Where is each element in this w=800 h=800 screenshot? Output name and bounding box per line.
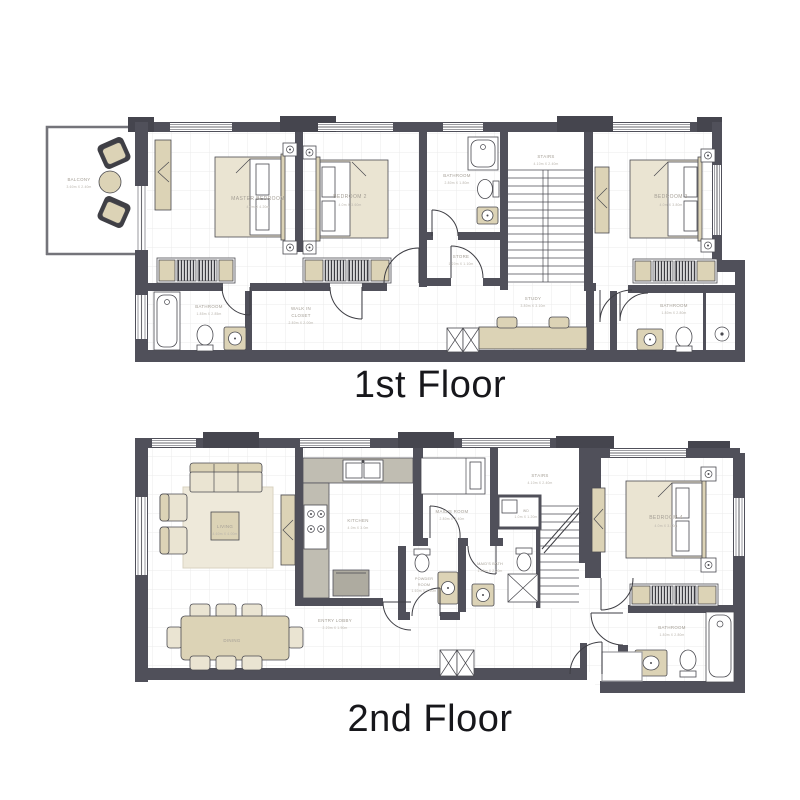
shaft (463, 328, 479, 352)
nightstand (701, 149, 715, 162)
svg-text:4.0m X 4.20m: 4.0m X 4.20m (247, 205, 270, 209)
window (713, 165, 721, 235)
svg-text:4.0m X 3.0m: 4.0m X 3.0m (348, 526, 369, 530)
svg-text:BATHROOM: BATHROOM (443, 173, 470, 178)
svg-text:1.80m X 2.20m: 1.80m X 2.20m (478, 569, 503, 573)
window (152, 439, 196, 447)
svg-text:BEDROOM 3: BEDROOM 3 (654, 194, 688, 200)
svg-text:1.80m X 2.80m: 1.80m X 2.80m (662, 311, 687, 315)
svg-text:4.0m X 3.80m: 4.0m X 3.80m (655, 524, 678, 528)
svg-text:CLOSET: CLOSET (291, 313, 310, 318)
sofa (190, 463, 262, 492)
toilet (676, 327, 692, 352)
svg-text:1.80m X 2.80m: 1.80m X 2.80m (660, 633, 685, 637)
svg-text:MASTER BEDROOM: MASTER BEDROOM (231, 196, 285, 202)
svg-text:ENTRY LOBBY: ENTRY LOBBY (318, 618, 352, 623)
svg-text:BATHROOM: BATHROOM (660, 303, 687, 308)
armchair (160, 494, 187, 521)
nightstand (701, 239, 715, 252)
svg-text:4.0m X 3.60m: 4.0m X 3.60m (339, 203, 362, 207)
wardrobe-cabinet (592, 488, 605, 552)
svg-text:POWDER: POWDER (415, 577, 433, 581)
room-label-dining: DINING (223, 638, 240, 643)
svg-text:BEDROOM 2: BEDROOM 2 (333, 194, 367, 200)
stove (304, 505, 327, 549)
bathtub (706, 612, 734, 682)
stool (549, 317, 569, 328)
wardrobe-row (303, 258, 391, 283)
nightstand (283, 143, 297, 156)
toilet (516, 548, 532, 571)
bathtub (154, 292, 180, 350)
toilet (478, 180, 500, 199)
nightstand (701, 558, 716, 572)
svg-text:2.20m X 1.90m: 2.20m X 1.90m (323, 626, 348, 630)
window (300, 439, 370, 447)
bathtub (468, 137, 498, 170)
svg-text:KITCHEN: KITCHEN (347, 518, 368, 523)
window (610, 449, 686, 457)
window (734, 498, 744, 556)
svg-text:BATHROOM: BATHROOM (195, 304, 222, 309)
wd-closet (498, 496, 540, 528)
sink (637, 329, 663, 350)
svg-text:BALCONY: BALCONY (67, 177, 90, 182)
svg-text:3.60m X 2.40m: 3.60m X 2.40m (67, 185, 92, 189)
svg-text:2.80m X 2.00m: 2.80m X 2.00m (289, 321, 314, 325)
sink (224, 327, 246, 350)
armchair (160, 527, 187, 554)
svg-text:DINING: DINING (223, 638, 240, 643)
svg-text:LIVING: LIVING (217, 524, 233, 529)
shaft (508, 574, 538, 602)
svg-text:WD: WD (523, 509, 529, 513)
dining-chair (216, 656, 236, 670)
shaft (440, 650, 457, 676)
window (136, 295, 147, 339)
shaft (457, 650, 474, 676)
window (136, 497, 147, 575)
wardrobe-cabinet (595, 167, 609, 233)
svg-text:1.60m X 1.50m: 1.60m X 1.50m (412, 589, 437, 593)
window (613, 123, 690, 131)
sink (438, 572, 458, 604)
wardrobe-cabinet (155, 140, 171, 210)
svg-text:STUDY: STUDY (525, 296, 541, 301)
sink (472, 584, 494, 606)
desk (479, 327, 587, 349)
svg-text:3.80m X 3.10m: 3.80m X 3.10m (521, 304, 546, 308)
kitchen-sink (343, 460, 383, 481)
dining-chair (167, 627, 182, 648)
single-bed (421, 458, 485, 494)
window (443, 123, 483, 131)
svg-text:ROOM: ROOM (418, 583, 431, 587)
svg-text:4.0m X 3.80m: 4.0m X 3.80m (660, 203, 683, 207)
svg-text:1.85m X 2.85m: 1.85m X 2.85m (197, 312, 222, 316)
sliding-glass-door (136, 186, 147, 250)
washer-dryer (502, 500, 517, 513)
nightstand (303, 146, 316, 159)
wardrobe-row (633, 259, 717, 283)
dining-chair (288, 627, 303, 648)
floor2-title: 2nd Floor (130, 698, 730, 741)
toilet (680, 650, 696, 677)
svg-text:MAID'S ROOM: MAID'S ROOM (436, 509, 469, 514)
balcony-table (99, 171, 121, 193)
nightstand (283, 241, 297, 254)
svg-text:2.80m X 1.80m: 2.80m X 1.80m (445, 181, 470, 185)
floor2-plan: LIVING4.60m X 4.00m KITCHEN4.0m X 3.0m D… (120, 430, 752, 698)
svg-text:MAID'S BATH: MAID'S BATH (477, 562, 503, 566)
svg-text:4.10m X 2.40m: 4.10m X 2.40m (528, 481, 553, 485)
dining-chair (242, 656, 262, 670)
stool (497, 317, 517, 328)
floor1-plan: BALCONY3.60m X 2.40m MASTER BEDROOM4.0m … (40, 112, 750, 364)
toilet (414, 549, 430, 572)
wardrobe-row (157, 258, 235, 283)
svg-text:2.80m X 2.40m: 2.80m X 2.40m (440, 517, 465, 521)
sink (477, 207, 498, 224)
tv-cabinet (281, 495, 295, 565)
bedroom2-furniture (303, 146, 391, 283)
svg-text:BEDROOM 4: BEDROOM 4 (649, 515, 683, 521)
floor1-title: 1st Floor (130, 364, 730, 407)
svg-text:BATHROOM: BATHROOM (658, 625, 685, 630)
window (170, 123, 232, 131)
maids-room-furniture (421, 458, 485, 494)
nightstand (701, 467, 716, 481)
svg-text:4.10m X 2.40m: 4.10m X 2.40m (534, 162, 559, 166)
dining-chair (190, 656, 210, 670)
nightstand (303, 241, 316, 254)
svg-text:1.20m X 1.10m: 1.20m X 1.10m (449, 262, 474, 266)
window (318, 123, 393, 131)
floorplan-page: BALCONY3.60m X 2.40m MASTER BEDROOM4.0m … (0, 0, 800, 800)
svg-text:1.0m X 1.20m: 1.0m X 1.20m (515, 515, 538, 519)
window (462, 439, 550, 447)
dishwasher (333, 570, 369, 596)
wardrobe-row (630, 584, 718, 606)
room-label-walk-in-closet: WALK INCLOSET2.80m X 2.00m (289, 306, 314, 325)
toilet (197, 325, 213, 351)
shaft (447, 328, 463, 352)
svg-text:WALK IN: WALK IN (291, 306, 311, 311)
svg-text:4.60m X 4.00m: 4.60m X 4.00m (213, 532, 238, 536)
svg-text:STAIRS: STAIRS (537, 154, 554, 159)
svg-text:STAIRS: STAIRS (531, 473, 548, 478)
svg-text:STORE: STORE (453, 254, 470, 259)
entry-step (602, 652, 642, 681)
